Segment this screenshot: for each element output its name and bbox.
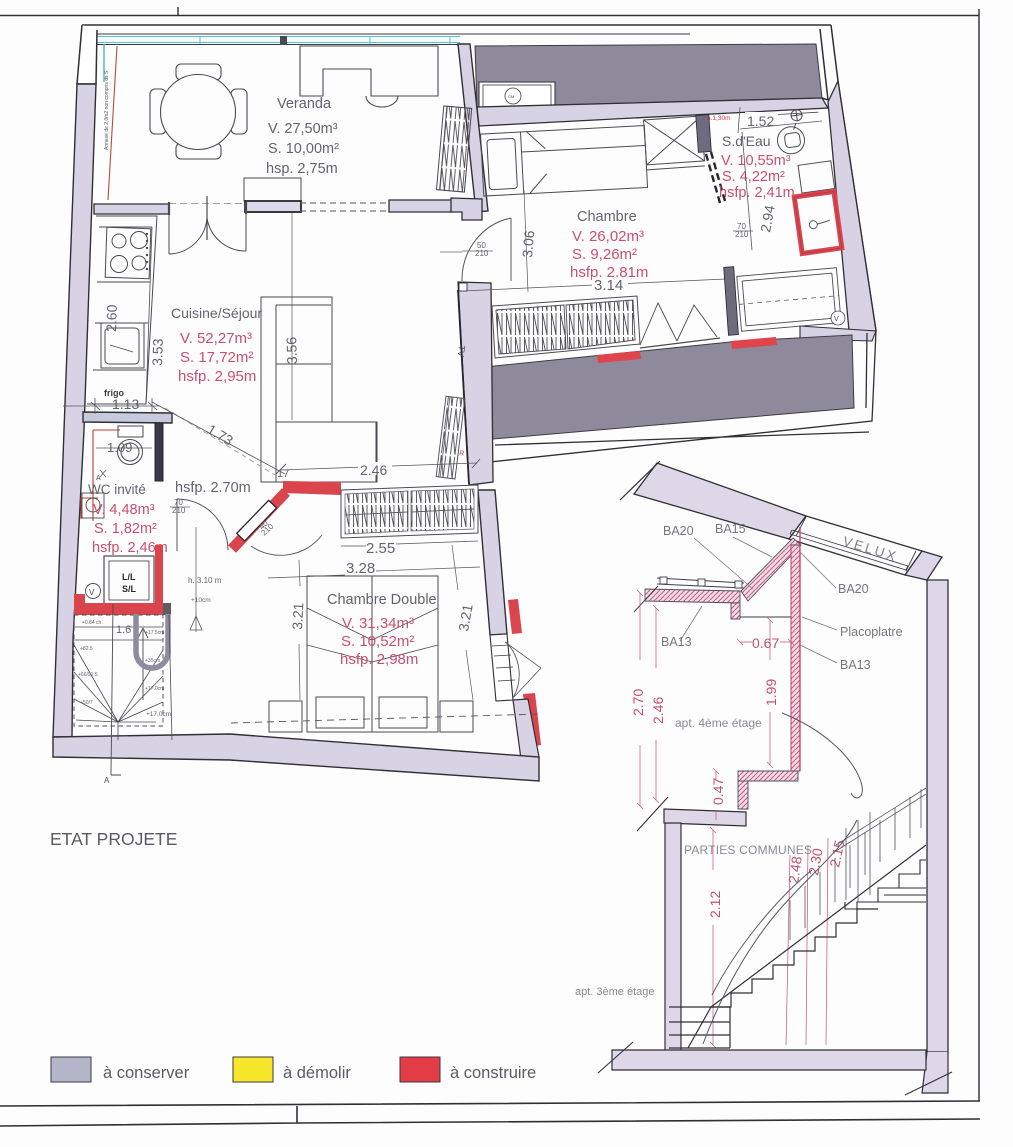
- svg-text:2.46: 2.46: [650, 697, 666, 724]
- svg-text:Placoplatre: Placoplatre: [840, 625, 903, 639]
- svg-text:h. 3.10 m: h. 3.10 m: [188, 576, 222, 585]
- svg-text:2.12: 2.12: [707, 891, 723, 918]
- svg-text:R: R: [459, 450, 465, 458]
- svg-text:3.28: 3.28: [346, 560, 375, 577]
- svg-text:+10cm: +10cm: [191, 597, 211, 604]
- svg-text:3.21: 3.21: [289, 602, 306, 630]
- svg-text:3.21: 3.21: [455, 603, 476, 633]
- svg-text:1.09: 1.09: [107, 440, 132, 455]
- svg-text:Annexe de 2,0m2 non compris ds: Annexe de 2,0m2 non compris ds S.: [104, 69, 110, 150]
- svg-text:210: 210: [475, 249, 489, 258]
- svg-text:1.6: 1.6: [116, 624, 131, 636]
- svg-text:à construire: à construire: [450, 1064, 536, 1082]
- svg-text:Chambre Double: Chambre Double: [327, 592, 437, 608]
- svg-text:2.46: 2.46: [360, 462, 387, 478]
- svg-text:S/L: S/L: [122, 584, 137, 594]
- svg-text:BA13: BA13: [661, 635, 692, 649]
- svg-text:L/L: L/L: [122, 572, 136, 582]
- svg-text:2.15: 2.15: [826, 838, 847, 868]
- svg-text:V. 4,48m³: V. 4,48m³: [93, 502, 155, 518]
- svg-text:h.1,30m: h.1,30m: [707, 115, 731, 122]
- svg-text:1.73: 1.73: [204, 421, 236, 449]
- svg-text:BA20: BA20: [838, 582, 869, 596]
- svg-text:Chambre: Chambre: [577, 209, 637, 225]
- svg-text:3.53: 3.53: [149, 338, 166, 366]
- svg-text:hsfp. 2,41m: hsfp. 2,41m: [719, 185, 795, 201]
- svg-text:hsfp. 2,98m: hsfp. 2,98m: [340, 651, 418, 668]
- svg-text:S. 17,72m²: S. 17,72m²: [180, 349, 253, 366]
- svg-text:V. 26,02m³: V. 26,02m³: [572, 228, 644, 245]
- svg-text:0.67: 0.67: [752, 635, 779, 651]
- svg-text:+66/91.5: +66/91.5: [78, 672, 98, 678]
- svg-text:+35cm: +35cm: [145, 658, 160, 664]
- svg-text:hsp. 2,75m: hsp. 2,75m: [266, 161, 338, 177]
- svg-text:V. 52,27m³: V. 52,27m³: [180, 330, 252, 347]
- svg-text:+0.84 ch: +0.84 ch: [82, 620, 102, 626]
- svg-text:1.99: 1.99: [763, 679, 779, 706]
- svg-text:V: V: [834, 316, 839, 323]
- svg-text:Veranda: Veranda: [277, 96, 332, 112]
- svg-text:à conserver: à conserver: [103, 1064, 190, 1082]
- svg-text:210: 210: [735, 230, 749, 239]
- svg-text:hsfp. 2,95m: hsfp. 2,95m: [178, 368, 256, 385]
- svg-text:+17.0cm: +17.0cm: [145, 686, 164, 692]
- svg-text:BA13: BA13: [840, 658, 871, 672]
- svg-text:A: A: [96, 475, 101, 482]
- svg-text:hsfp. 2.70m: hsfp. 2.70m: [175, 480, 251, 496]
- svg-text:2.48: 2.48: [785, 855, 805, 884]
- svg-text:S. 1,82m²: S. 1,82m²: [94, 521, 157, 537]
- svg-text:apt. 3ème étage: apt. 3ème étage: [575, 986, 655, 998]
- svg-text:TV: TV: [456, 345, 467, 358]
- svg-text:+17,0cm: +17,0cm: [146, 711, 171, 718]
- svg-text:+17.5cm: +17.5cm: [145, 630, 164, 636]
- svg-text:1.13: 1.13: [112, 396, 139, 412]
- svg-text:CM: CM: [508, 94, 514, 99]
- svg-text:0.47: 0.47: [710, 778, 726, 805]
- svg-text:A: A: [104, 776, 110, 785]
- svg-text:3.56: 3.56: [283, 336, 300, 364]
- svg-text:S. 10,52m²: S. 10,52m²: [341, 633, 414, 650]
- svg-text:à démolir: à démolir: [283, 1064, 351, 1082]
- svg-text:Cuisine/Séjour: Cuisine/Séjour: [171, 305, 262, 321]
- svg-text:2.94: 2.94: [757, 204, 778, 234]
- svg-text:BA20: BA20: [663, 524, 694, 538]
- svg-text:BA15: BA15: [715, 522, 746, 536]
- svg-text:+82.5: +82.5: [80, 646, 93, 652]
- svg-text:S. 10,00m²: S. 10,00m²: [268, 141, 339, 157]
- svg-text:2.55: 2.55: [366, 540, 395, 557]
- svg-text:V. 31,34m³: V. 31,34m³: [342, 615, 414, 632]
- svg-text:3.06: 3.06: [519, 230, 537, 259]
- svg-text:ETAT PROJETE: ETAT PROJETE: [50, 829, 177, 849]
- svg-text:2.70: 2.70: [630, 689, 646, 716]
- svg-text:PARTIES COMMUNES: PARTIES COMMUNES: [684, 843, 812, 857]
- svg-text:3.14: 3.14: [594, 277, 623, 294]
- svg-text:apt. 4ème étage: apt. 4ème étage: [675, 716, 762, 730]
- svg-text:17: 17: [277, 468, 289, 480]
- svg-text:+50/7: +50/7: [80, 700, 93, 706]
- svg-text:V. 10,55m³: V. 10,55m³: [721, 153, 791, 169]
- svg-text:WC invité: WC invité: [88, 482, 146, 497]
- svg-text:S. 4,22m²: S. 4,22m²: [722, 169, 785, 185]
- svg-text:S.d'Eau: S.d'Eau: [722, 133, 771, 149]
- svg-text:2.60: 2.60: [103, 304, 120, 332]
- svg-text:V: V: [89, 588, 95, 597]
- svg-text:V. 27,50m³: V. 27,50m³: [268, 121, 338, 137]
- svg-text:S. 9,26m²: S. 9,26m²: [572, 246, 637, 263]
